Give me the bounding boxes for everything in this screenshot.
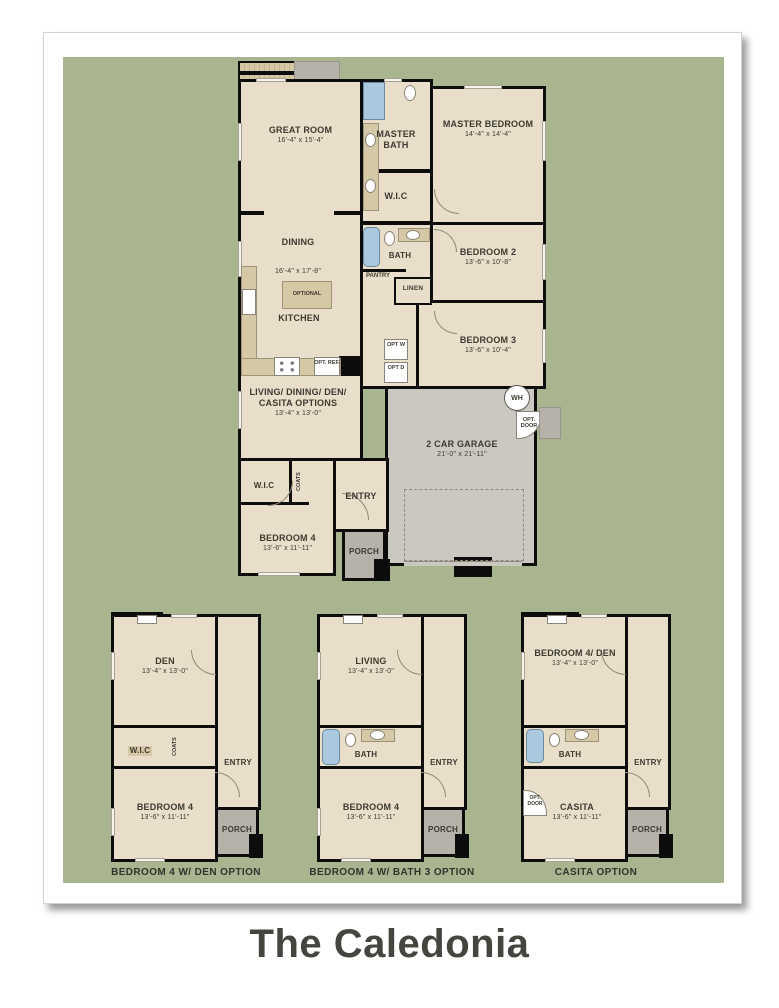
opt1-porch-notch [249,834,263,858]
opt2-entry-label: ENTRY [421,758,467,768]
floorplan-card: OPT. REF. OPTIONAL OPT W OPT D [43,32,742,904]
bathtub-icon [363,227,380,267]
window [377,614,403,618]
opt3-porch-label: PORCH [625,825,669,835]
garage-door-gap [404,561,522,566]
window [542,121,546,161]
option-plan-bath3: LIVING 13'-4" x 13'-0" BATH ENTRY BEDROO… [317,612,467,882]
room-bedroom4 [238,458,336,576]
linen-label: LINEN [394,285,432,293]
great-room-label: GREAT ROOM 16'-4" x 15'-4" [243,125,358,144]
master-bath-label: MASTER BATH [364,129,428,151]
window [135,858,165,862]
opt2-porch-label: PORCH [421,825,465,835]
window [542,329,546,363]
opt2-top-room-label: LIVING 13'-4" x 13'-0" [321,656,421,675]
porch-notch [374,559,390,581]
window [581,614,607,618]
bedroom4-label: BEDROOM 4 13'-6" x 11'-11" [240,533,335,552]
side-stoop [539,407,561,439]
bedroom2-label: BEDROOM 2 13'-6" x 10'-8" [438,247,538,266]
opt1-porch-label: PORCH [215,825,259,835]
window [384,78,402,82]
opt2-caption: BEDROOM 4 W/ BATH 3 OPTION [305,867,479,878]
opt2-porch-notch [455,834,469,858]
water-heater-icon: WH [504,385,530,411]
opt3-top-room-label: BEDROOM 4/ DEN 13'-4" x 13'-0" [525,648,625,667]
wall-stub [339,356,363,376]
opt1-bottom-room-label: BEDROOM 4 13'-6" x 11'-11" [115,802,215,821]
opt1-coats-label: COATS [172,732,181,762]
site-canvas: OPT. REF. OPTIONAL OPT W OPT D [63,57,724,883]
shower-icon [363,82,385,120]
window [171,614,197,618]
sink-icon [406,230,420,240]
master-wic-label: W.I.C [368,191,424,202]
opt1-top-room-label: DEN 13'-4" x 13'-0" [115,656,215,675]
window [341,858,371,862]
wall-stub [238,211,264,215]
wall-bath-hall [360,269,406,272]
toilet-icon [549,733,560,747]
optional-island-label: OPTIONAL [282,291,332,297]
opt1-entry-label: ENTRY [215,758,261,768]
driveway-dashed [404,489,524,561]
plan-title: The Caledonia [0,922,779,967]
opt1-wic-label: W.I.C [114,740,166,758]
stove-icon [274,357,300,376]
opt3-sink-icon [547,615,567,624]
page: OPT. REF. OPTIONAL OPT W OPT D [0,0,779,1008]
pantry-label: PANTRY [361,273,395,280]
toilet-icon [404,85,416,101]
bath-label: BATH [378,251,422,261]
opt-ref-label: OPT. REF. [314,360,340,366]
window [258,572,300,576]
wic4-label: W.I.C [240,481,288,491]
toilet-icon [345,733,356,747]
flex-room-label: LIVING/ DINING/ DEN/ CASITA OPTIONS 13'-… [246,387,350,417]
opt1-sink-icon [137,615,157,624]
opt2-bottom-room-label: BEDROOM 4 13'-6" x 11'-11" [321,802,421,821]
option-plan-den: DEN 13'-4" x 13'-0" W.I.C COATS ENTRY BE… [111,612,261,882]
window [542,244,546,280]
opt3-entry-label: ENTRY [625,758,671,768]
dining-dims: 16'-4" x 17'-8" [248,267,348,275]
bathtub-icon [526,729,544,763]
window [464,85,502,89]
main-floor-plan: OPT. REF. OPTIONAL OPT W OPT D [238,61,548,606]
opt-washer-label: OPT W [384,342,408,348]
dining-label: DINING [248,237,348,248]
wall-wic-bath [360,221,433,225]
window [238,123,242,161]
opt2-sink-icon [343,615,363,624]
master-bedroom-label: MASTER BEDROOM 14'-4" x 14'-4" [438,119,538,138]
toilet-icon [384,231,395,246]
entry-label: ENTRY [336,491,386,502]
opt3-bath-label: BATH [545,750,595,760]
kitchen-label: KITCHEN [254,313,344,324]
option-plan-casita: OPT. DOOR BEDROOM 4/ DEN 13'-4" x 13'-0"… [521,612,671,882]
wall-stub [334,211,363,215]
garage-label: 2 CAR GARAGE 21'-0" x 21'-11" [396,439,528,458]
opt-dryer-label: OPT D [384,365,408,371]
window [238,391,242,429]
window [545,858,575,862]
sink-icon [574,730,589,740]
opt1-caption: BEDROOM 4 W/ DEN OPTION [101,867,271,878]
kitchen-sink-icon [242,289,256,315]
porch-label: PORCH [342,547,386,557]
window [256,78,286,82]
opt3-bottom-room-label: CASITA 13'-6" x 11'-11" [537,802,617,821]
opt2-bath-label: BATH [341,750,391,760]
opt3-caption: CASITA OPTION [521,867,671,878]
bathtub-icon [322,729,340,765]
coats-label: COATS [296,465,306,499]
sink-icon [370,730,385,740]
bedroom3-label: BEDROOM 3 13'-6" x 10'-4" [436,335,540,354]
opt3-porch-notch [659,834,673,858]
